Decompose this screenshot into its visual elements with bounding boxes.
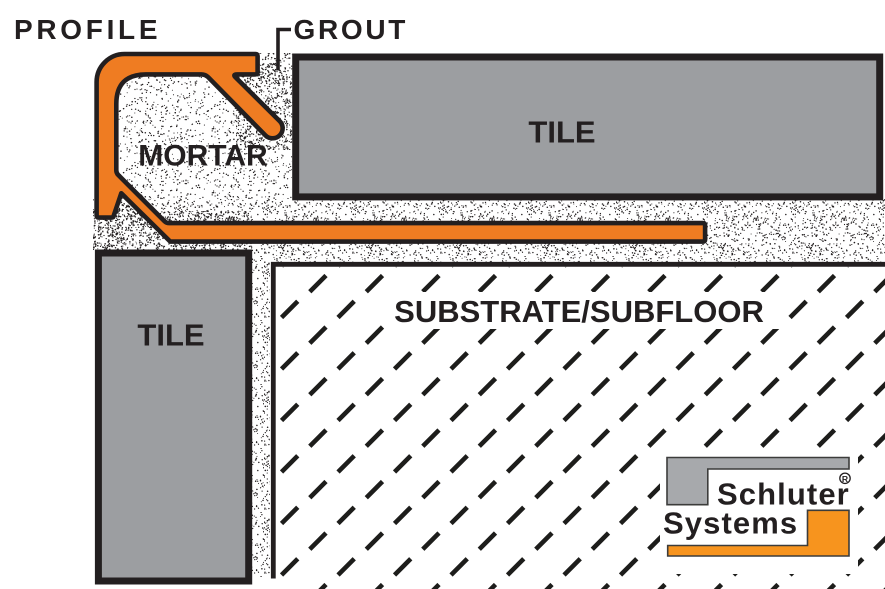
svg-text:TILE: TILE <box>137 318 204 353</box>
svg-text:PROFILE: PROFILE <box>14 14 161 45</box>
svg-text:Systems: Systems <box>663 506 798 541</box>
svg-text:SUBSTRATE/SUBFLOOR: SUBSTRATE/SUBFLOOR <box>394 294 764 329</box>
svg-text:GROUT: GROUT <box>294 14 409 45</box>
svg-text:MORTAR: MORTAR <box>138 140 268 173</box>
svg-text:TILE: TILE <box>528 115 595 150</box>
svg-text:R: R <box>842 474 849 484</box>
